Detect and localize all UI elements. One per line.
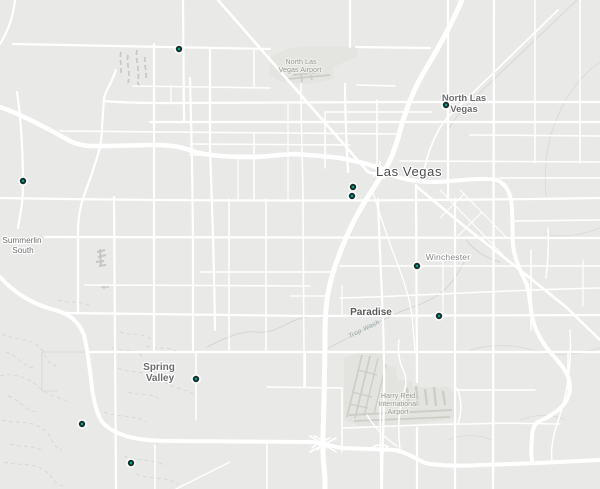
svg-text:Vegas Airport: Vegas Airport	[279, 65, 322, 74]
svg-text:Paradise: Paradise	[350, 307, 392, 318]
svg-text:Valley: Valley	[146, 373, 175, 384]
svg-text:Airport: Airport	[387, 407, 408, 416]
svg-text:Winchester: Winchester	[426, 252, 471, 262]
svg-text:Summerlin: Summerlin	[2, 236, 42, 245]
svg-text:Spring: Spring	[143, 362, 175, 373]
svg-text:Vegas: Vegas	[450, 104, 477, 115]
svg-text:Las Vegas: Las Vegas	[376, 164, 442, 179]
svg-text:South: South	[12, 246, 34, 255]
